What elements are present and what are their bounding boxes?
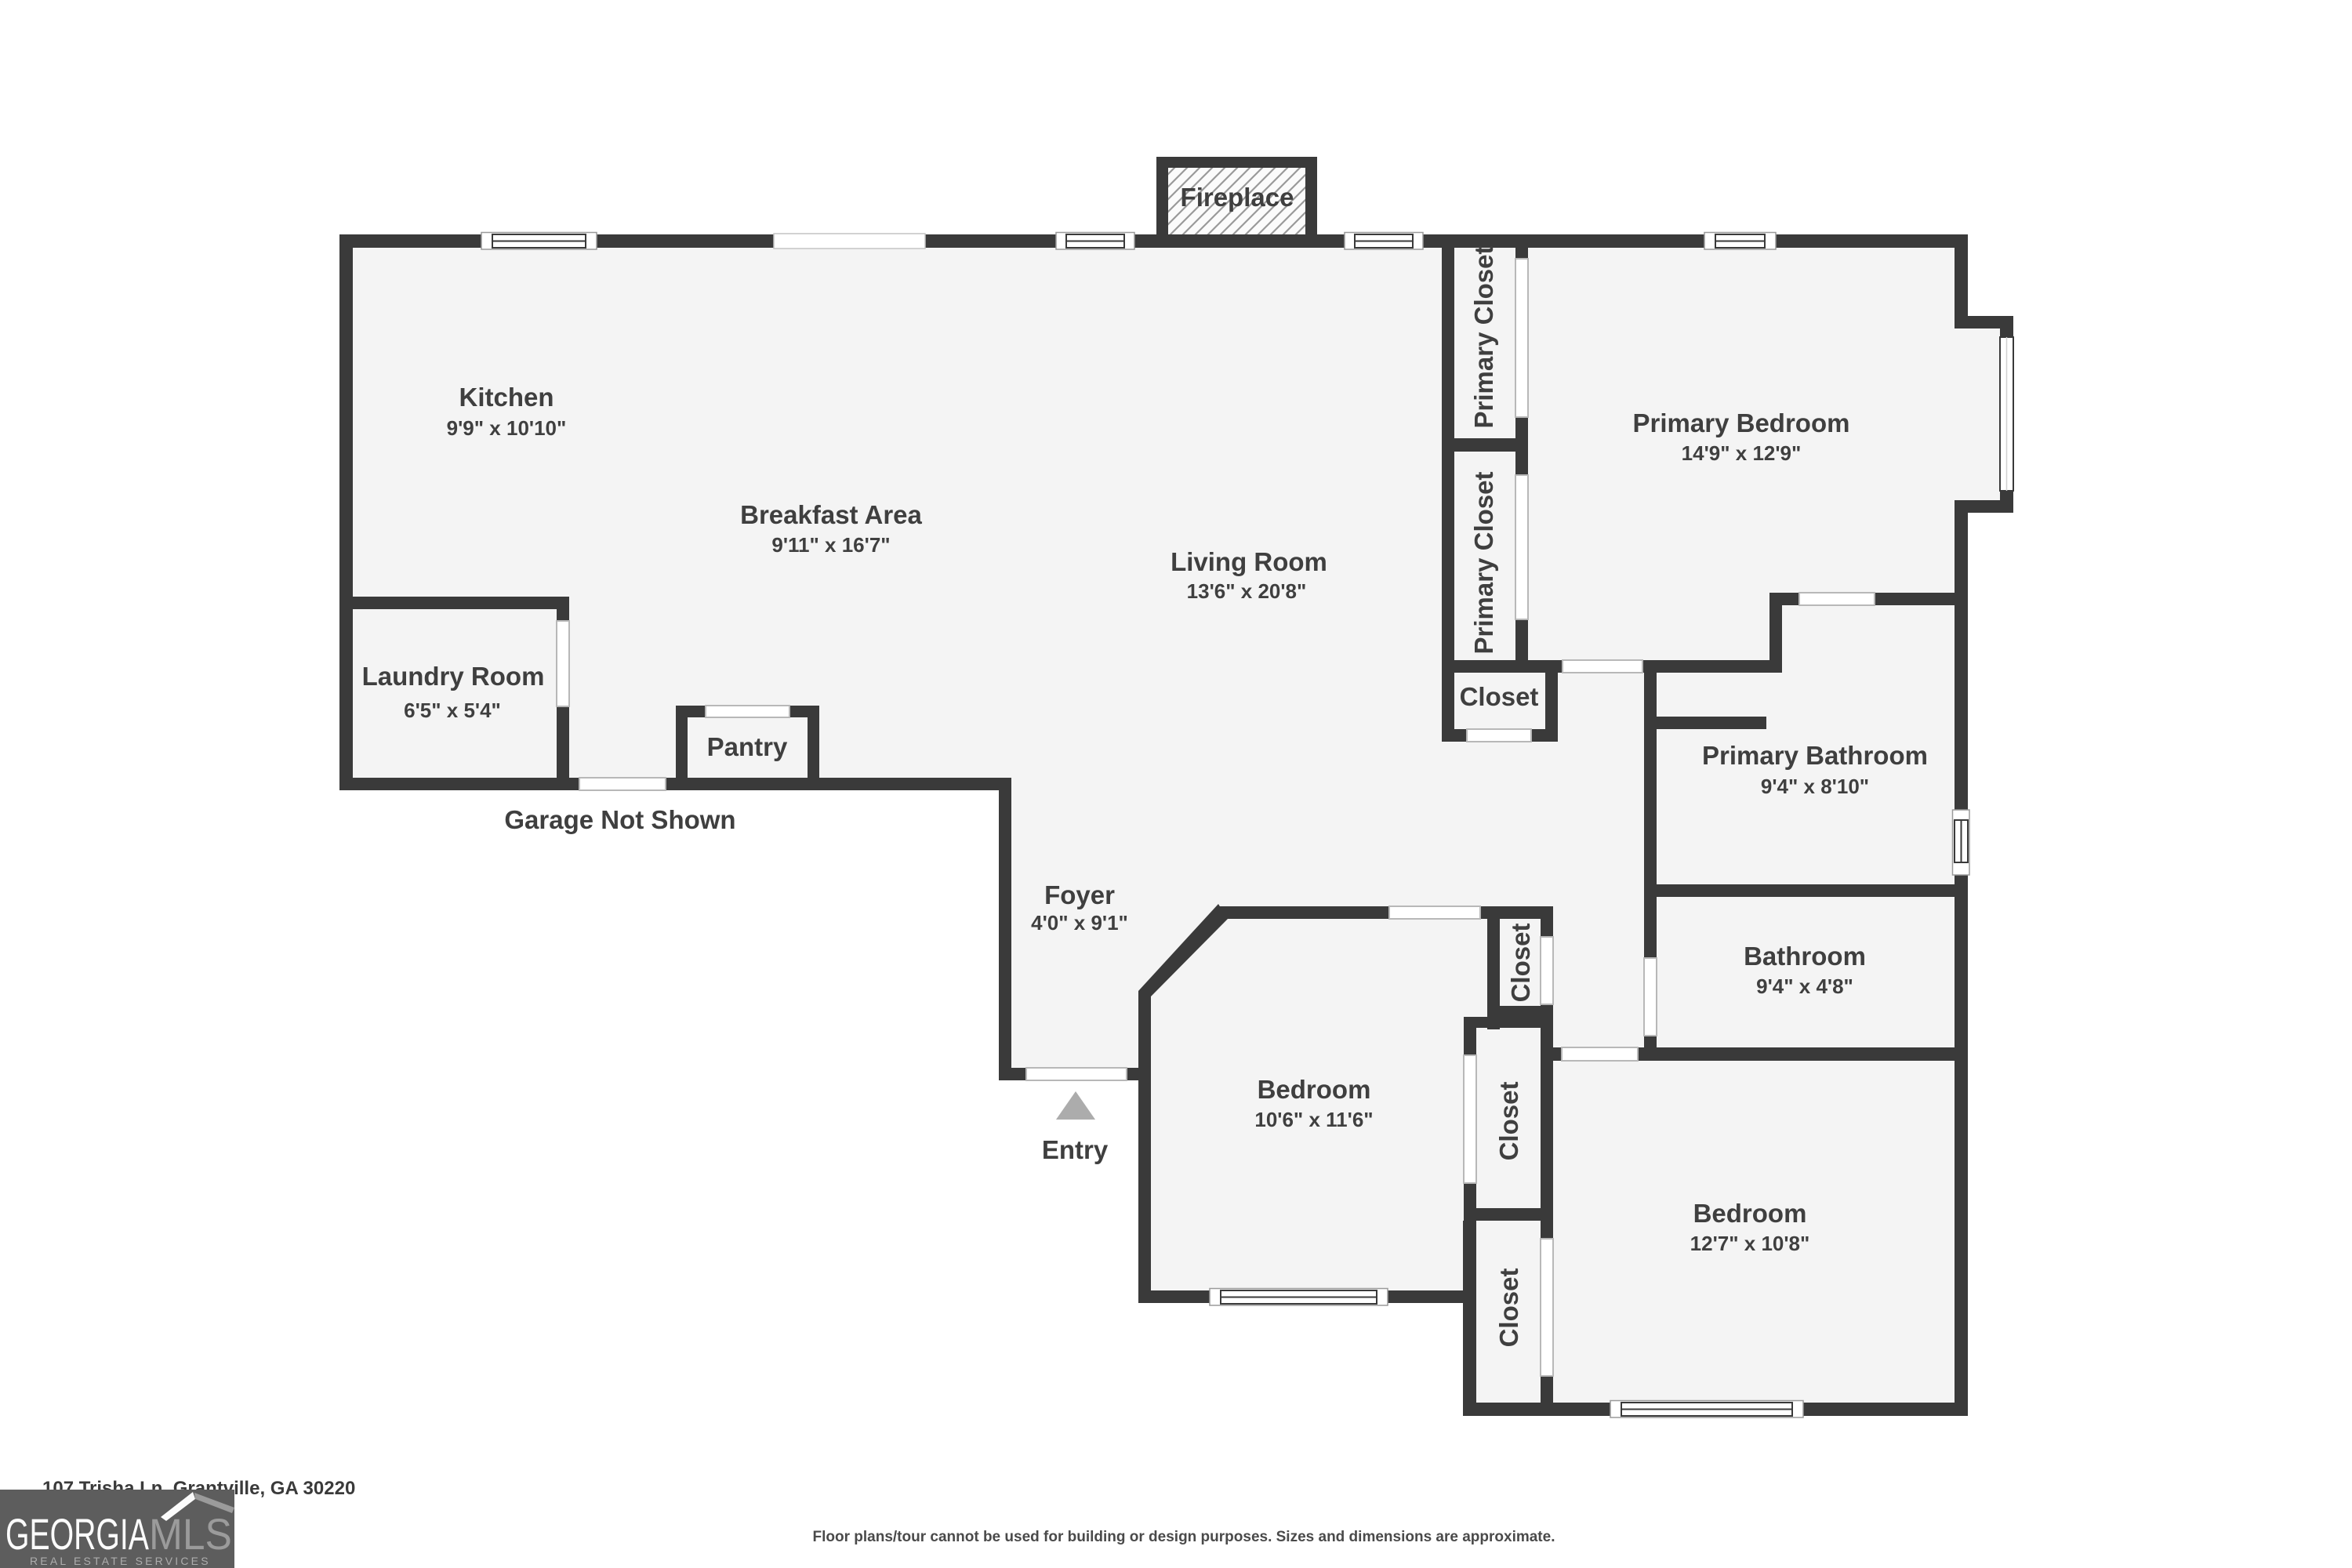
svg-text:Primary Bathroom: Primary Bathroom (1702, 741, 1928, 770)
svg-text:Closet: Closet (1494, 1082, 1523, 1161)
svg-text:Primary Closet: Primary Closet (1469, 246, 1498, 429)
svg-text:Foyer: Foyer (1044, 880, 1115, 909)
svg-text:9'4" x 8'10": 9'4" x 8'10" (1761, 775, 1869, 798)
svg-text:9'9" x 10'10": 9'9" x 10'10" (447, 416, 567, 440)
svg-text:Closet: Closet (1506, 924, 1535, 1003)
svg-text:Garage Not Shown: Garage Not Shown (504, 805, 735, 834)
svg-text:9'4" x 4'8": 9'4" x 4'8" (1756, 975, 1853, 998)
svg-text:6'5" x 5'4": 6'5" x 5'4" (404, 699, 501, 722)
svg-text:Primary Bedroom: Primary Bedroom (1633, 408, 1850, 437)
svg-text:Closet: Closet (1494, 1269, 1523, 1348)
svg-text:Living Room: Living Room (1171, 547, 1327, 576)
svg-text:Breakfast Area: Breakfast Area (740, 500, 922, 529)
svg-text:Pantry: Pantry (707, 732, 788, 761)
svg-text:10'6" x 11'6": 10'6" x 11'6" (1254, 1108, 1373, 1131)
svg-text:Bedroom: Bedroom (1693, 1199, 1807, 1228)
svg-text:14'9" x 12'9": 14'9" x 12'9" (1682, 441, 1802, 465)
svg-text:9'11" x 16'7": 9'11" x 16'7" (771, 533, 890, 557)
svg-text:Floor plans/tour cannot be use: Floor plans/tour cannot be used for buil… (813, 1529, 1555, 1545)
svg-text:Primary Closet: Primary Closet (1469, 472, 1498, 655)
svg-text:Bedroom: Bedroom (1258, 1075, 1371, 1104)
svg-text:REAL ESTATE SERVICES: REAL ESTATE SERVICES (30, 1555, 211, 1567)
svg-text:Bathroom: Bathroom (1744, 942, 1866, 971)
svg-text:Laundry Room: Laundry Room (362, 662, 545, 691)
svg-text:4'0" x 9'1": 4'0" x 9'1" (1031, 911, 1128, 935)
svg-text:GEORGIA: GEORGIA (5, 1510, 150, 1559)
svg-text:Fireplace: Fireplace (1181, 183, 1294, 212)
svg-text:13'6" x 20'8": 13'6" x 20'8" (1187, 579, 1307, 603)
svg-text:Entry: Entry (1042, 1135, 1109, 1164)
svg-text:Closet: Closet (1460, 682, 1539, 711)
svg-text:Kitchen: Kitchen (459, 383, 554, 412)
svg-text:12'7" x 10'8": 12'7" x 10'8" (1690, 1232, 1810, 1255)
